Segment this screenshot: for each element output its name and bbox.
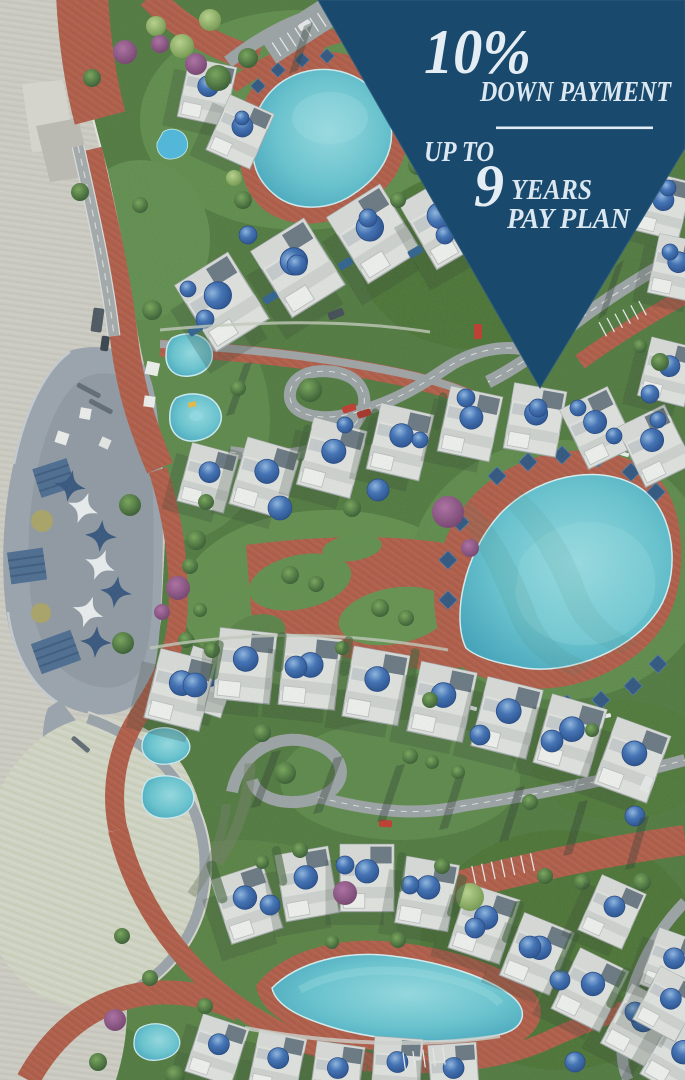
svg-text:9: 9 <box>474 153 504 219</box>
svg-text:YEARS: YEARS <box>511 174 592 206</box>
svg-text:DOWN PAYMENT: DOWN PAYMENT <box>479 76 672 108</box>
svg-text:PAY PLAN: PAY PLAN <box>506 203 631 235</box>
